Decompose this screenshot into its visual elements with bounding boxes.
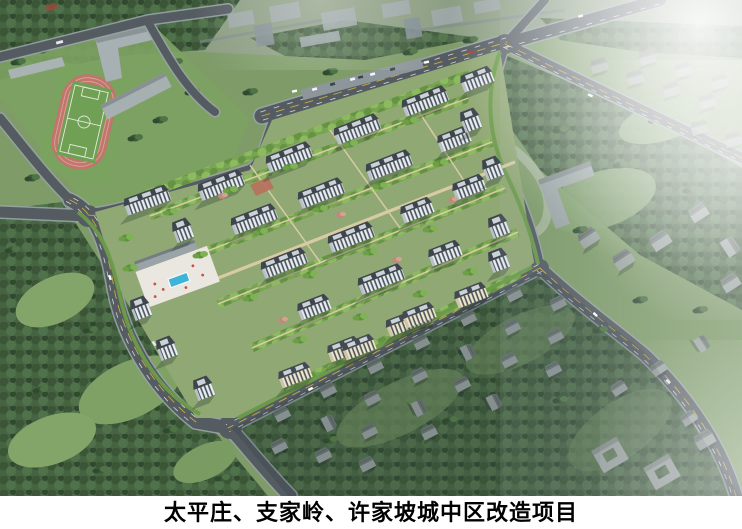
aerial-render <box>0 0 742 496</box>
project-rendering-page: 太平庄、支家岭、许家坡城中区改造项目 <box>0 0 742 529</box>
caption-bar: 太平庄、支家岭、许家坡城中区改造项目 <box>0 496 742 529</box>
project-title: 太平庄、支家岭、许家坡城中区改造项目 <box>164 496 578 529</box>
